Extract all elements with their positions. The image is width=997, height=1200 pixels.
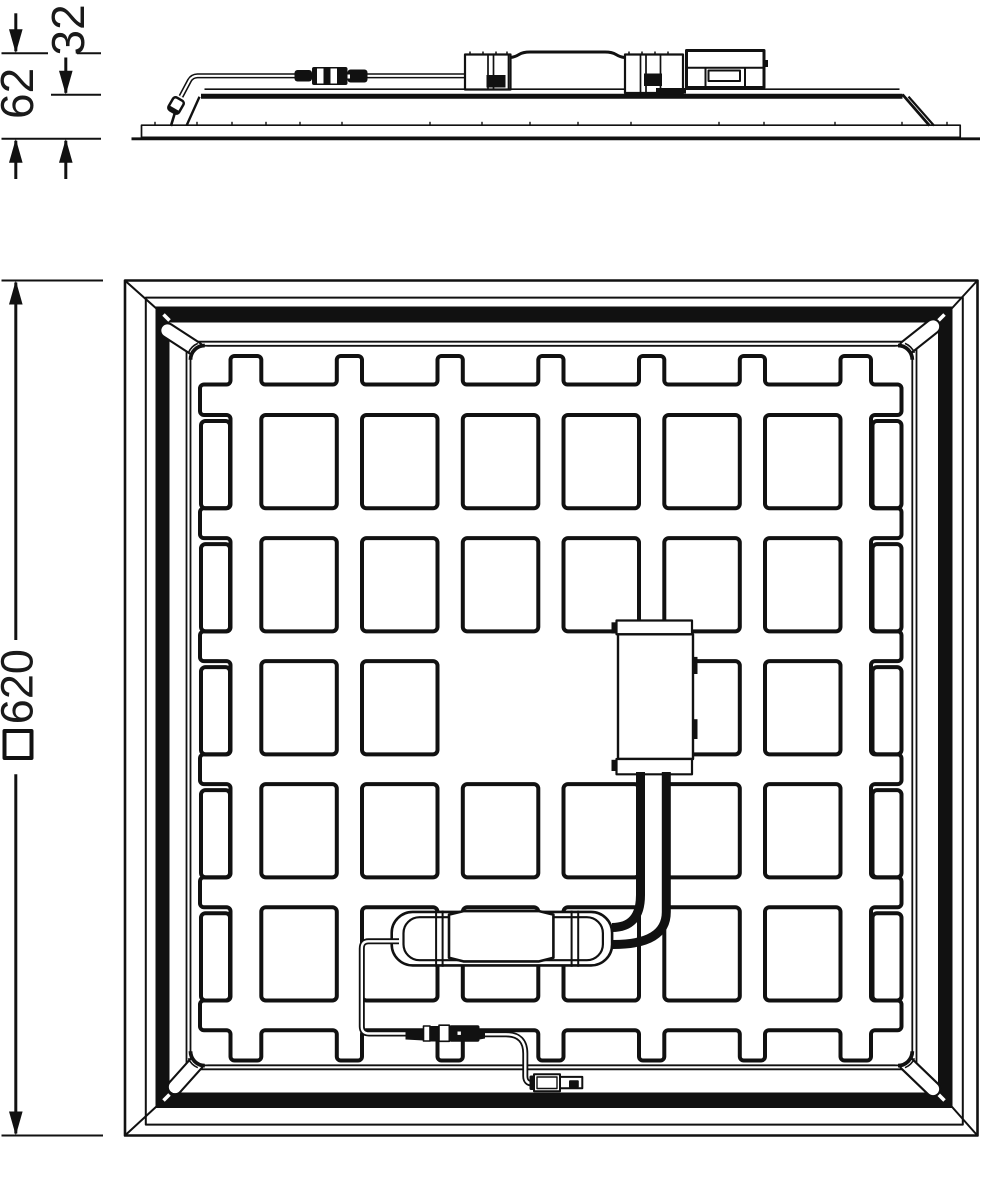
svg-text:620: 620: [0, 649, 43, 724]
svg-text:62: 62: [0, 68, 43, 119]
svg-text:32: 32: [42, 4, 94, 55]
